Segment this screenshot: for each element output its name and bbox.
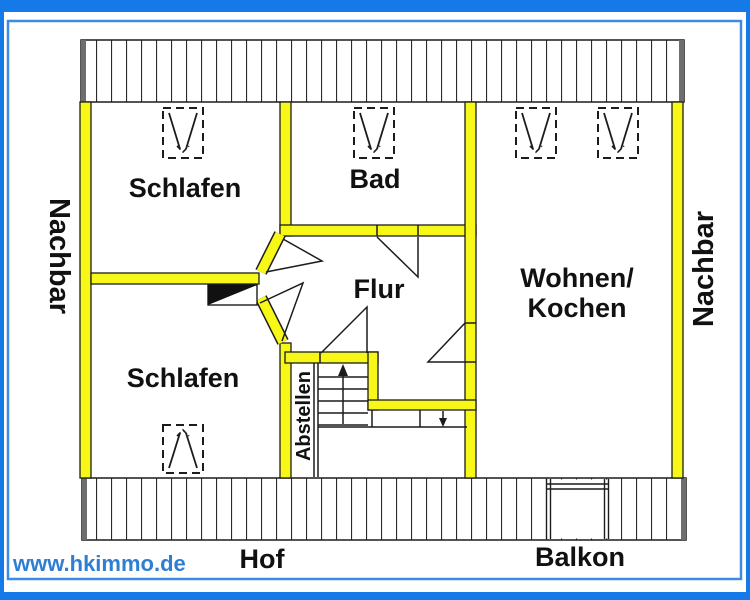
wall-bad-flur [280,225,476,236]
door-swing-bad [377,237,418,277]
watermark-text: www.hkimmo.de [12,551,186,576]
border-top [0,0,750,12]
hatch-strip [81,40,684,102]
roof-hatch-bottom [82,478,686,540]
door-swing-stairs [321,307,367,353]
wall-schlafen-bad-divider [280,102,291,236]
outside-label-balkon: Balkon [535,542,625,572]
border-right [746,0,750,600]
wall-stair-bottom [368,400,476,410]
room-label-wohnen-line2: Kochen [527,293,626,323]
floor-plan-page: Schlafen Bad Flur Wohnen/ Kochen Schlafe… [0,0,750,600]
entrance-door-symbol [208,285,257,305]
hatch-end-cap [679,40,684,102]
border-left [0,0,4,600]
door-swing-wohnen [428,323,465,362]
room-label-abstellen: Abstellen [293,371,315,461]
roof-hatch-top [81,40,684,102]
stairs [314,363,467,477]
neighbor-label-left: Nachbar [43,198,75,314]
room-label-flur: Flur [354,274,405,304]
balcony-window [545,479,610,539]
diagonal-walls [261,234,283,342]
room-label-schlafen-top: Schlafen [129,173,242,203]
hatch-end-cap [81,40,86,102]
skylight-icon [163,108,203,158]
wall-schlafen-divider [91,273,259,284]
neighbor-label-right: Nachbar [688,211,720,327]
stairs-up-arrow [338,364,348,424]
room-label-wohnen-line1: Wohnen/ [520,263,634,293]
outside-label-hof: Hof [240,544,286,574]
room-label-bad: Bad [349,164,400,194]
wall-flur-wohnen [465,102,476,478]
skylight-icon [163,425,203,473]
wall-outer-left [80,102,91,478]
skylight-icon [598,108,638,158]
stairs-down-arrow [439,411,447,427]
wall-abstellen-top [285,352,378,363]
hatch-end-cap [681,478,686,540]
room-label-schlafen-bottom: Schlafen [127,363,240,393]
floor-plan: Schlafen Bad Flur Wohnen/ Kochen Schlafe… [0,0,750,600]
skylight-icon [354,108,394,158]
wall-diagonal-lower [261,298,283,342]
border-bottom [0,592,750,600]
wall-outer-right [672,102,683,478]
skylight-icon [516,108,556,158]
hatch-end-cap [82,478,87,540]
